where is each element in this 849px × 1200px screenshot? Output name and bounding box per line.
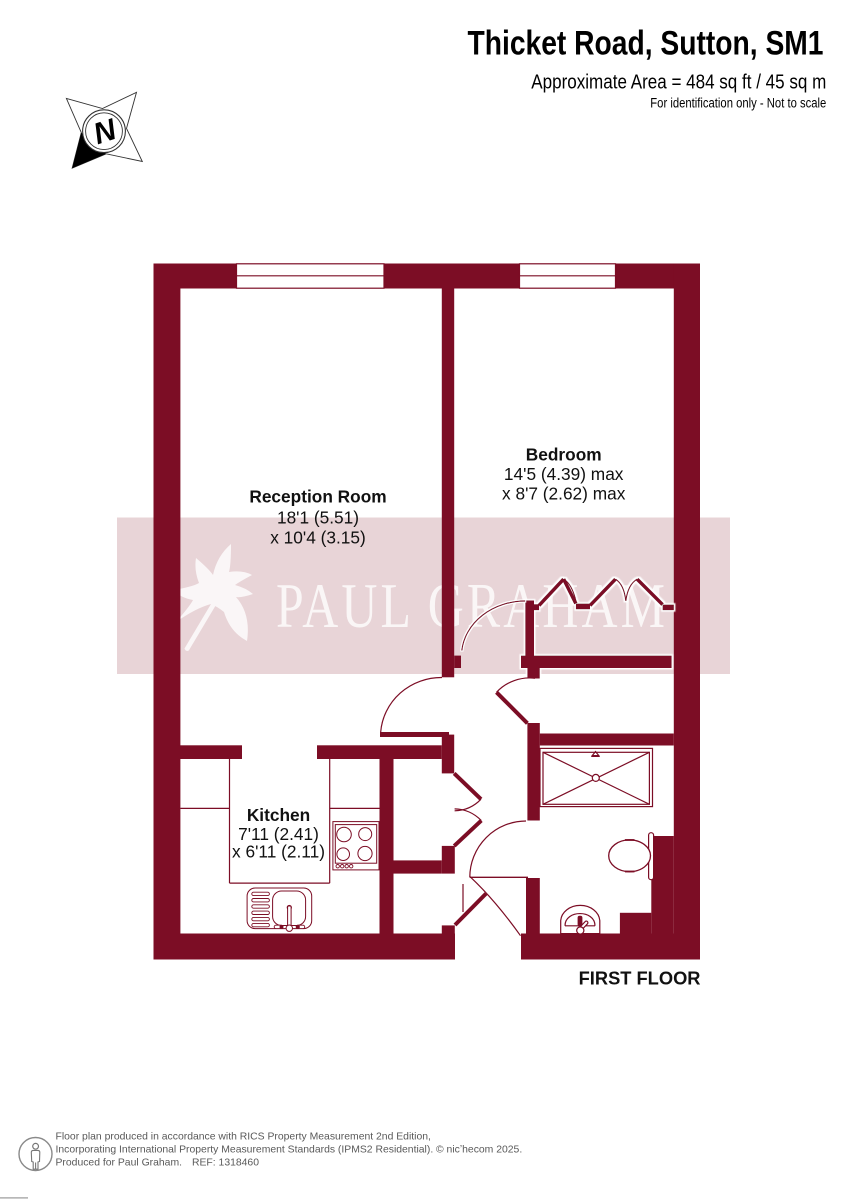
svg-text:Floor plan produced in accorda: Floor plan produced in accordance with R…	[56, 1131, 431, 1142]
svg-text:Approximate Area = 484 sq ft /: Approximate Area = 484 sq ft / 45 sq m	[531, 71, 826, 94]
svg-text:Produced for Paul Graham.REF:: Produced for Paul Graham.REF: 1318460	[56, 1157, 260, 1168]
svg-text:PAUL GRAHAM: PAUL GRAHAM	[276, 570, 668, 641]
svg-text:Bedroom: Bedroom	[526, 445, 602, 465]
svg-text:14'5 (4.39) max: 14'5 (4.39) max	[504, 464, 624, 484]
svg-text:Thicket Road, Sutton, SM1: Thicket Road, Sutton, SM1	[468, 25, 824, 63]
svg-text:18'1 (5.51): 18'1 (5.51)	[277, 508, 359, 528]
svg-text:Kitchen: Kitchen	[247, 805, 310, 825]
svg-text:x 10'4 (3.15): x 10'4 (3.15)	[270, 528, 366, 548]
svg-text:x 6'11 (2.11): x 6'11 (2.11)	[232, 841, 325, 861]
svg-text:Reception Room: Reception Room	[249, 487, 386, 507]
svg-text:For identification only - Not: For identification only - Not to scale	[650, 96, 826, 111]
svg-text:Incorporating International Pr: Incorporating International Property Mea…	[56, 1144, 434, 1155]
svg-text:FIRST FLOOR: FIRST FLOOR	[579, 967, 701, 988]
svg-text:© nicʼhecom 2025.: © nicʼhecom 2025.	[436, 1144, 522, 1155]
svg-text:x 8'7 (2.62) max: x 8'7 (2.62) max	[502, 484, 626, 504]
